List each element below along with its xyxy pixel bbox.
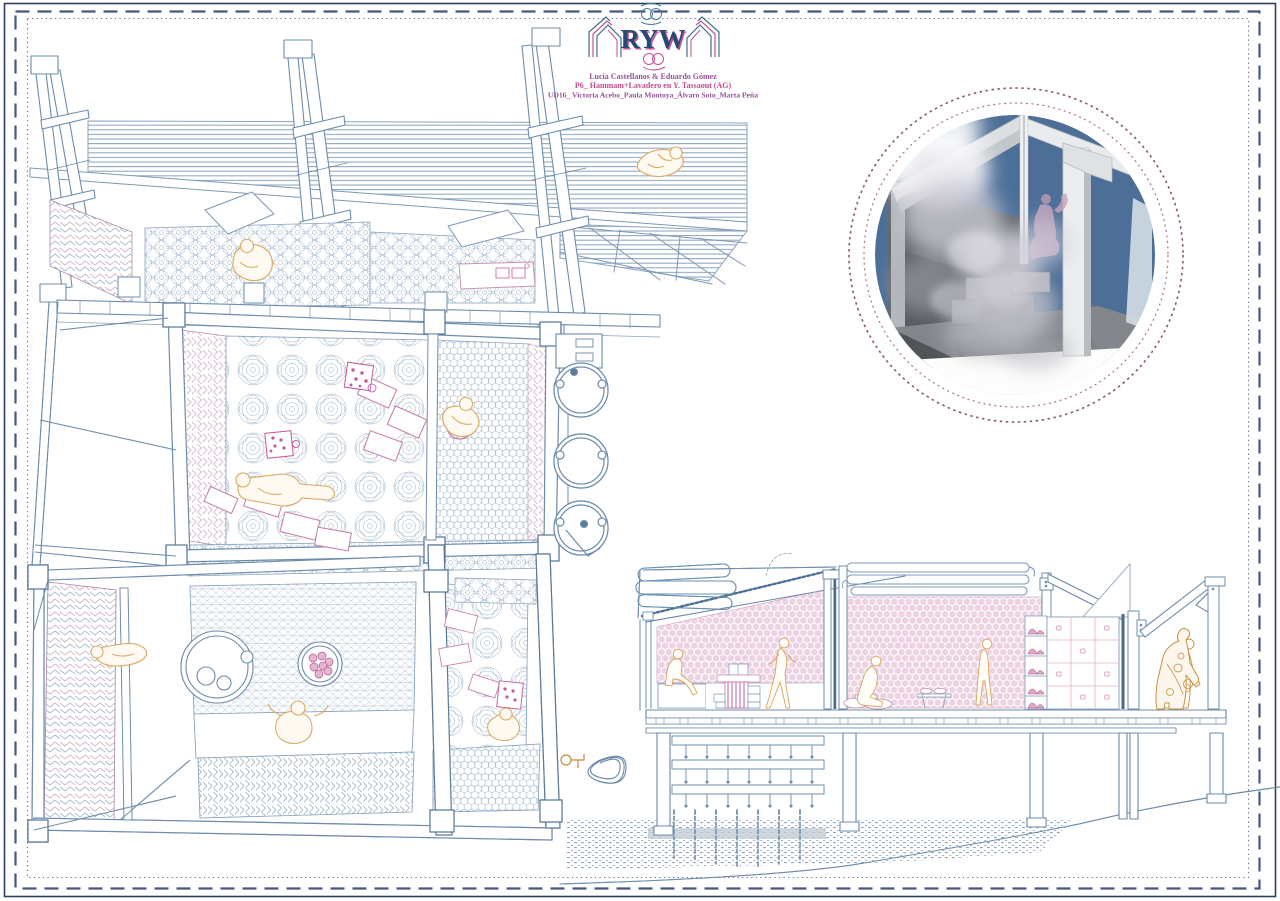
svg-text:UD16_ Victoria Acebo_Paula Mon: UD16_ Victoria Acebo_Paula Montoya_Álvar…: [548, 90, 758, 100]
svg-text:P6_ Hammam+Lavadero en Y. Tass: P6_ Hammam+Lavadero en Y. Tassaout (AG): [575, 81, 732, 90]
svg-text:RYW: RYW: [620, 24, 685, 54]
svg-text:Lucía Castellanos & Eduardo Gó: Lucía Castellanos & Eduardo Gómez: [589, 72, 717, 81]
